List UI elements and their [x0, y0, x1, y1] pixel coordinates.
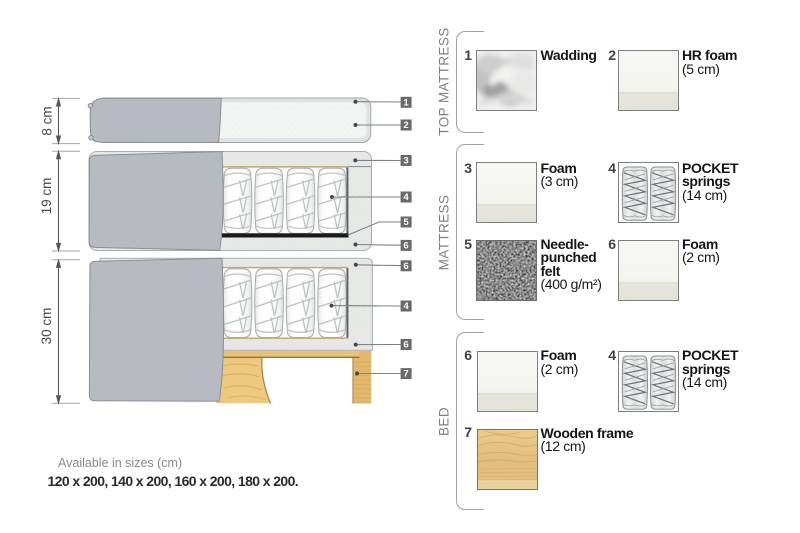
svg-text:6: 6	[403, 241, 408, 252]
svg-text:4: 4	[403, 192, 409, 203]
svg-text:8 cm: 8 cm	[40, 106, 55, 135]
svg-text:1: 1	[403, 97, 409, 108]
svg-text:19 cm: 19 cm	[39, 178, 54, 215]
svg-text:5: 5	[403, 217, 409, 228]
svg-text:3: 3	[403, 156, 408, 167]
svg-text:2: 2	[403, 120, 408, 131]
svg-text:6: 6	[403, 261, 408, 272]
svg-text:30 cm: 30 cm	[39, 308, 54, 345]
svg-text:4: 4	[403, 301, 409, 312]
svg-text:7: 7	[403, 369, 408, 380]
svg-text:6: 6	[403, 340, 408, 351]
